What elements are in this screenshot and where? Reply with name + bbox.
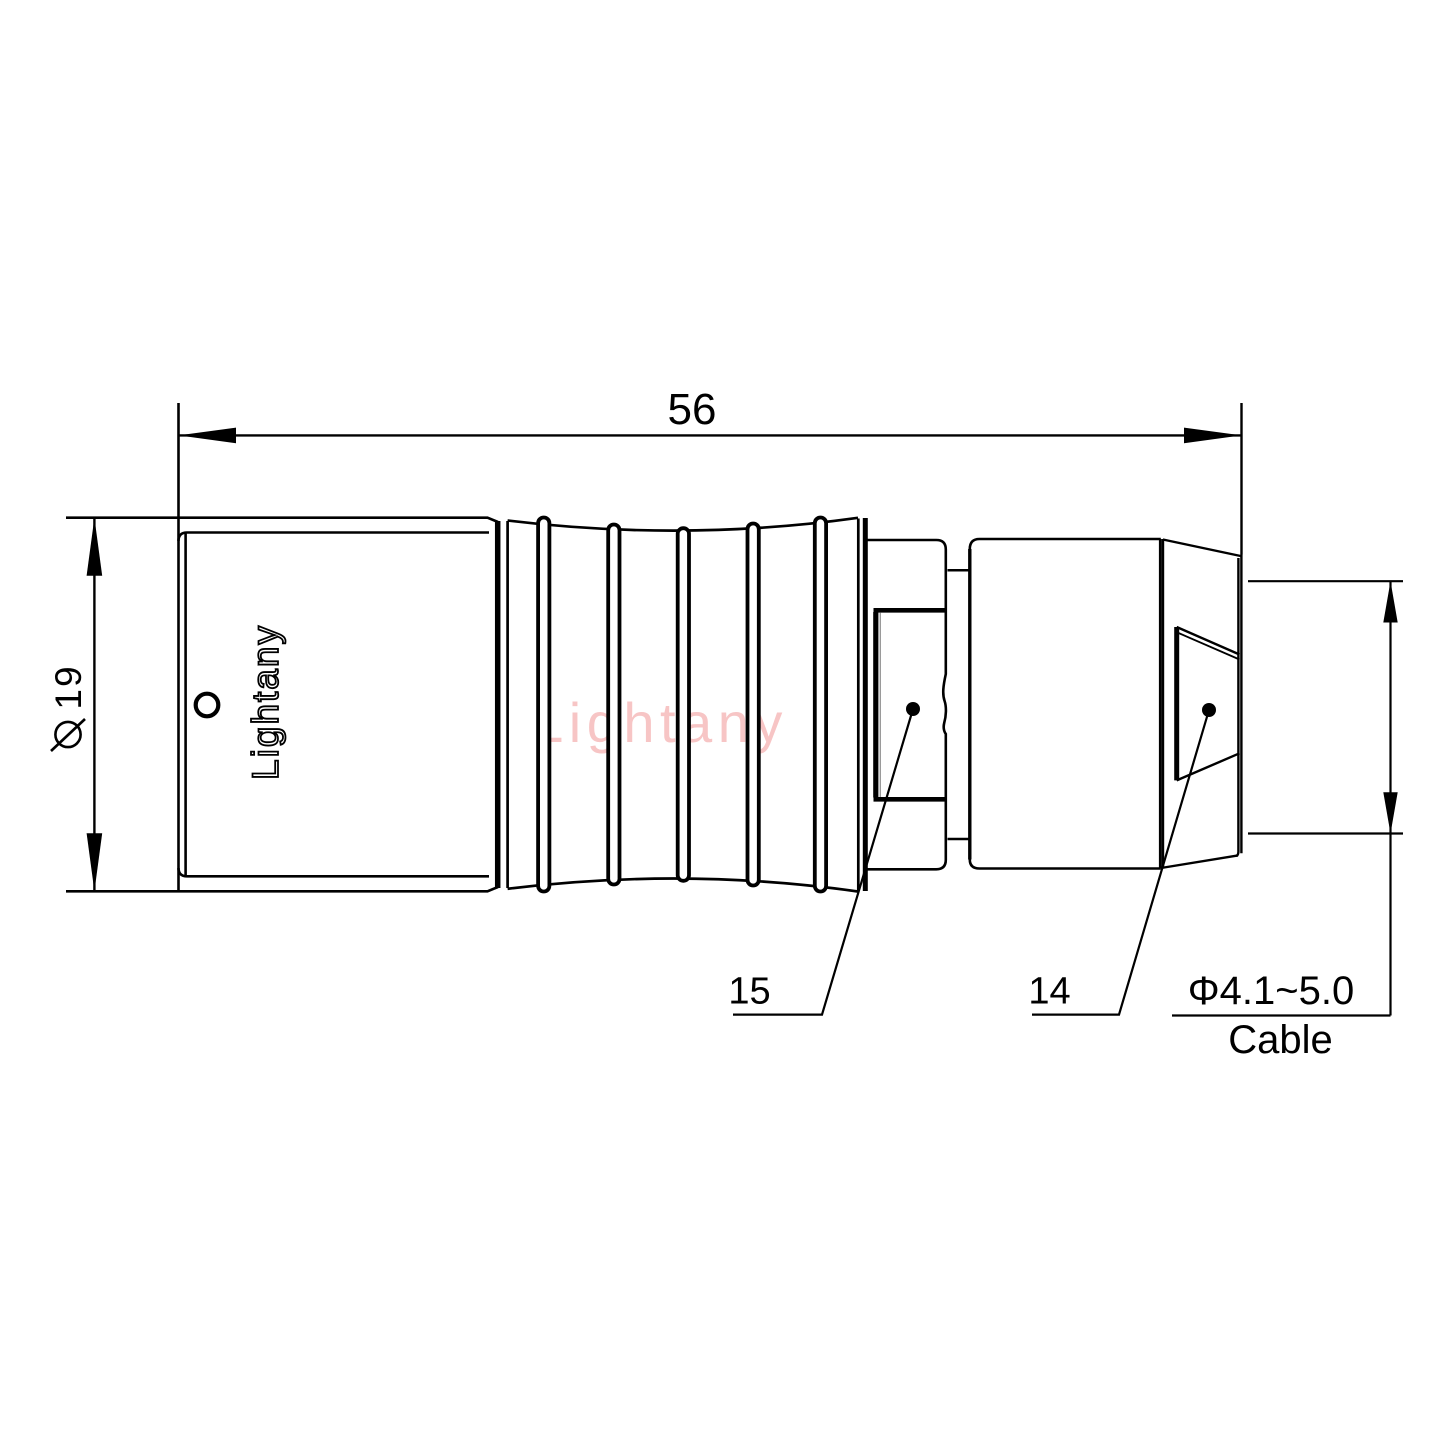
svg-text:19: 19 xyxy=(48,664,89,709)
svg-text:Cable: Cable xyxy=(1228,1018,1333,1062)
svg-text:14: 14 xyxy=(1028,971,1070,1013)
svg-text:Φ4.1~5.0: Φ4.1~5.0 xyxy=(1188,969,1354,1013)
svg-text:56: 56 xyxy=(668,385,717,434)
svg-text:15: 15 xyxy=(728,971,770,1013)
svg-text:Lightany: Lightany xyxy=(245,624,286,780)
